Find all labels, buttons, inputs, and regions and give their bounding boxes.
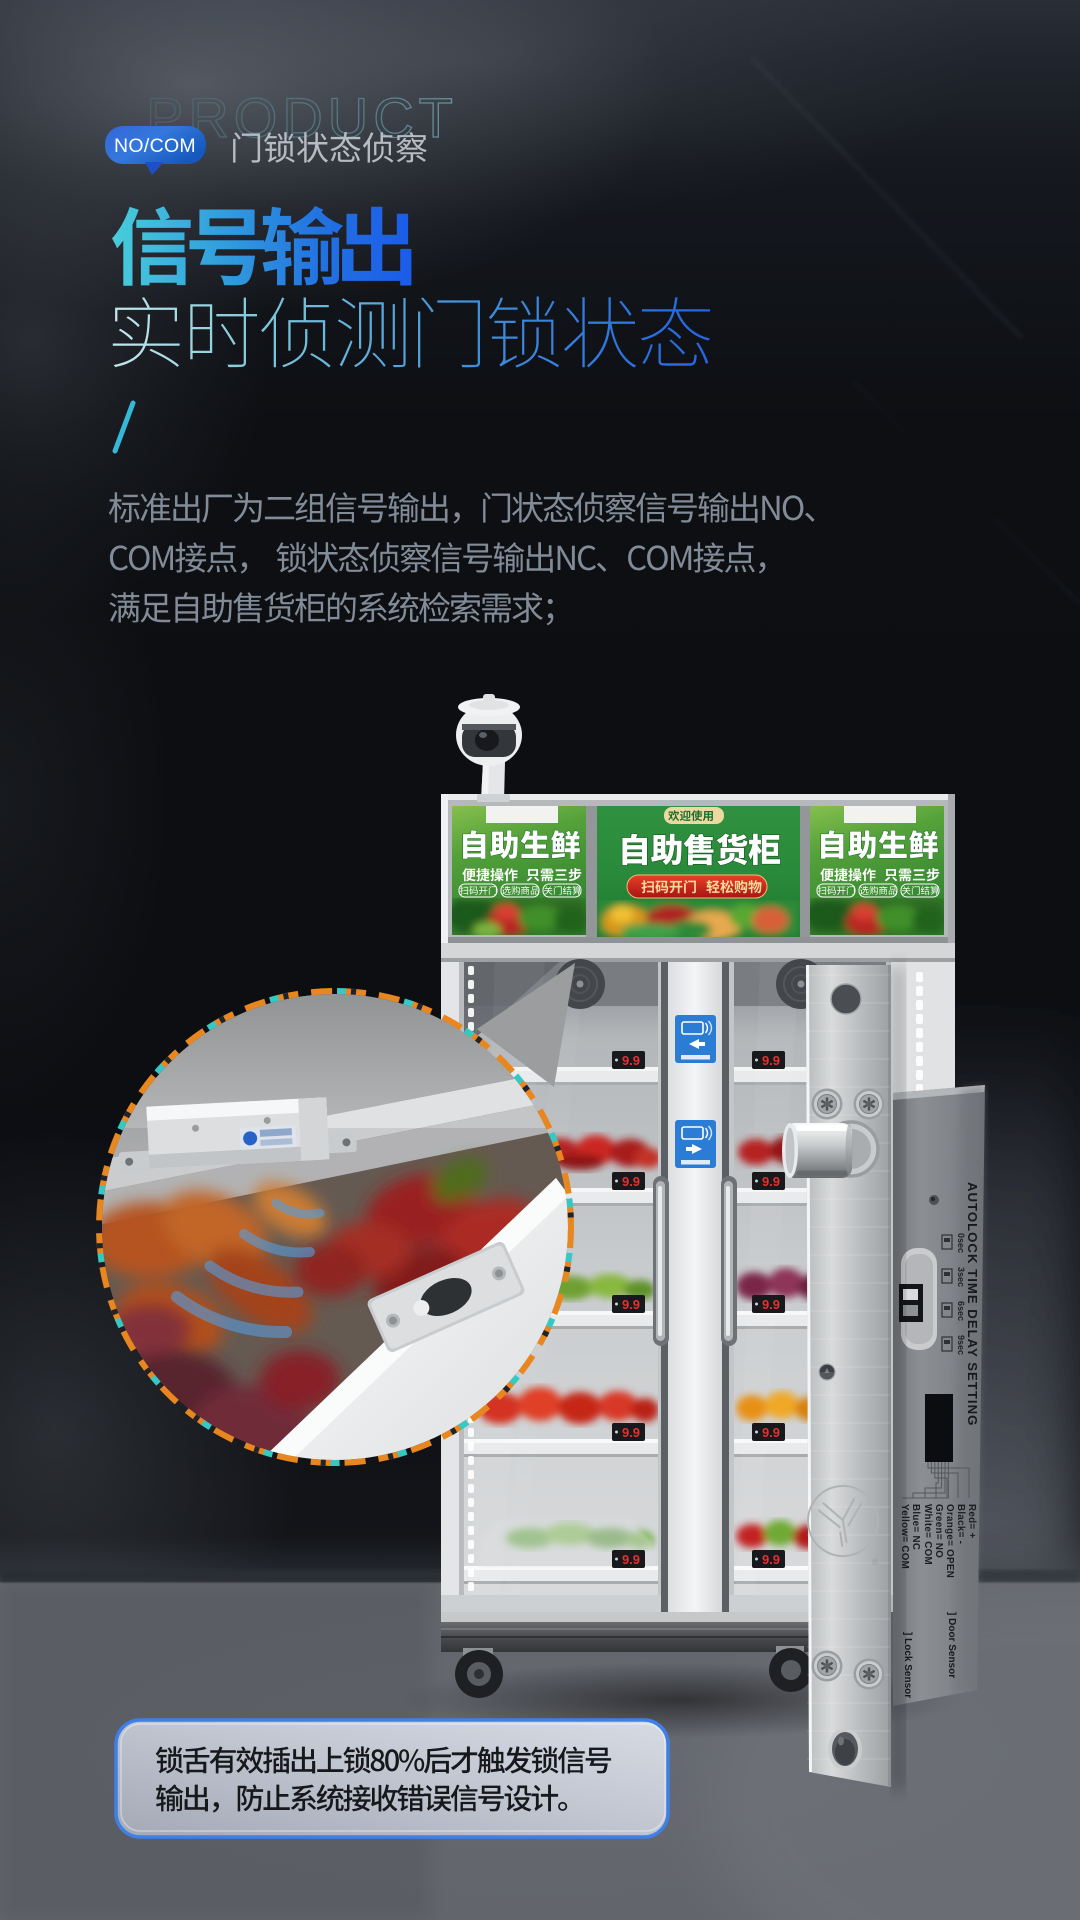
svg-text:9.9: 9.9 — [622, 1053, 640, 1068]
svg-text:9.9: 9.9 — [622, 1297, 640, 1312]
svg-text:9.9: 9.9 — [622, 1174, 640, 1189]
svg-text:®: ® — [872, 1557, 879, 1567]
svg-text:Orange= OPEN: Orange= OPEN — [944, 1504, 955, 1578]
svg-text:Green= NO: Green= NO — [933, 1504, 944, 1558]
svg-text:Red= +: Red= + — [966, 1504, 977, 1538]
svg-text:9.9: 9.9 — [762, 1053, 780, 1068]
svg-text:9.9: 9.9 — [762, 1552, 780, 1567]
svg-text:AUTOLOCK TIME DELAY SETTING: AUTOLOCK TIME DELAY SETTING — [965, 1182, 980, 1426]
svg-text:0sec: 0sec — [956, 1233, 966, 1253]
svg-text:9.9: 9.9 — [762, 1174, 780, 1189]
svg-text:9.9: 9.9 — [622, 1552, 640, 1567]
svg-text:9.9: 9.9 — [762, 1425, 780, 1440]
svg-text:9.9: 9.9 — [762, 1297, 780, 1312]
svg-text:] Door Sensor: ] Door Sensor — [946, 1612, 957, 1678]
svg-text:Blue= NC: Blue= NC — [910, 1504, 921, 1550]
svg-text:9.9: 9.9 — [622, 1425, 640, 1440]
svg-text:6sec: 6sec — [956, 1301, 966, 1321]
svg-text:NO/COM: NO/COM — [114, 135, 196, 157]
svg-text:Black= -: Black= - — [955, 1504, 966, 1544]
svg-text:9sec: 9sec — [956, 1335, 966, 1355]
svg-text:3sec: 3sec — [956, 1267, 966, 1287]
svg-text:White= COM: White= COM — [922, 1504, 933, 1565]
